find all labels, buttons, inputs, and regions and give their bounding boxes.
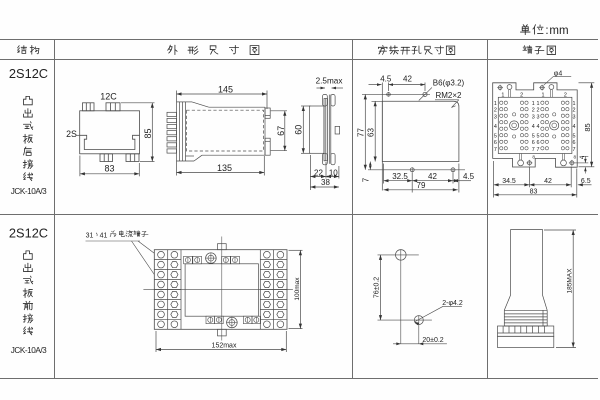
svg-text:1: 1 <box>542 92 545 98</box>
svg-text:JCK-10A/3: JCK-10A/3 <box>11 346 47 355</box>
svg-text:41: 41 <box>100 232 108 239</box>
svg-text:83: 83 <box>530 188 538 195</box>
svg-text:4.5: 4.5 <box>380 75 392 84</box>
svg-text:83: 83 <box>104 163 114 173</box>
svg-text:7: 7 <box>532 147 535 153</box>
svg-text:1: 1 <box>532 101 535 107</box>
svg-text:JCK-10A/3: JCK-10A/3 <box>11 187 47 196</box>
svg-text:10: 10 <box>329 168 338 177</box>
svg-text:4: 4 <box>573 124 576 130</box>
svg-text:100max: 100max <box>294 277 301 301</box>
svg-text:6: 6 <box>494 140 497 146</box>
svg-text:2: 2 <box>532 107 535 113</box>
svg-text:22: 22 <box>314 168 323 177</box>
svg-text:2: 2 <box>537 107 540 113</box>
svg-text:5: 5 <box>573 134 576 140</box>
svg-text:6.5: 6.5 <box>581 178 591 185</box>
svg-text:4: 4 <box>580 155 586 159</box>
svg-text:2: 2 <box>564 92 567 98</box>
svg-text:3: 3 <box>532 115 535 121</box>
svg-text:31: 31 <box>86 232 94 239</box>
svg-text:2.5max: 2.5max <box>316 76 343 85</box>
svg-text:79: 79 <box>417 181 426 190</box>
svg-text:135: 135 <box>217 163 232 173</box>
svg-text::: : <box>545 25 548 37</box>
svg-text:5: 5 <box>532 134 535 140</box>
svg-text:3: 3 <box>573 115 576 121</box>
svg-text:6: 6 <box>573 140 576 146</box>
svg-text:8: 8 <box>532 154 535 159</box>
svg-text:5: 5 <box>494 134 497 140</box>
svg-text:2: 2 <box>520 92 523 98</box>
svg-text:4.5: 4.5 <box>463 172 475 181</box>
svg-text:34.5: 34.5 <box>502 178 516 185</box>
svg-text:20±0.2: 20±0.2 <box>422 337 443 344</box>
svg-text:1: 1 <box>501 92 504 98</box>
svg-text:8: 8 <box>574 154 577 159</box>
svg-text:2S12C: 2S12C <box>9 225 48 240</box>
svg-text:2-φ4.2: 2-φ4.2 <box>442 300 463 307</box>
svg-text:B6(φ3.2): B6(φ3.2) <box>433 79 465 88</box>
svg-text:3: 3 <box>537 115 540 121</box>
svg-text:1: 1 <box>537 101 540 107</box>
svg-text:85: 85 <box>583 123 592 131</box>
svg-text:1: 1 <box>573 101 576 107</box>
svg-text:77: 77 <box>357 128 366 137</box>
svg-text:12C: 12C <box>100 92 117 102</box>
svg-text:152max: 152max <box>212 342 237 349</box>
svg-text:85: 85 <box>143 128 153 138</box>
svg-text:145: 145 <box>218 84 233 94</box>
svg-text:3: 3 <box>494 115 497 121</box>
svg-text:7: 7 <box>361 177 370 182</box>
svg-text:76±0.2: 76±0.2 <box>374 277 381 298</box>
svg-text:4: 4 <box>532 124 535 130</box>
svg-text:42: 42 <box>544 178 552 185</box>
svg-text:67: 67 <box>276 126 286 136</box>
svg-text:4: 4 <box>494 124 497 130</box>
svg-text:32.5: 32.5 <box>392 172 408 181</box>
svg-text:4: 4 <box>537 124 540 130</box>
svg-text:185MAX: 185MAX <box>567 268 574 294</box>
svg-text:38: 38 <box>321 178 330 187</box>
svg-text:7: 7 <box>573 147 576 153</box>
svg-text:60: 60 <box>294 125 304 135</box>
svg-text:2S: 2S <box>66 129 77 139</box>
svg-text:2: 2 <box>573 107 576 113</box>
svg-text:2S12C: 2S12C <box>9 66 48 81</box>
svg-text:63: 63 <box>367 128 376 137</box>
svg-text:1: 1 <box>494 101 497 107</box>
svg-text:42: 42 <box>428 172 437 181</box>
svg-text:6: 6 <box>537 140 540 146</box>
svg-text:6: 6 <box>532 140 535 146</box>
svg-text:7: 7 <box>494 147 497 153</box>
svg-text:5: 5 <box>537 134 540 140</box>
svg-text:mm: mm <box>549 25 568 37</box>
svg-text:2: 2 <box>494 107 497 113</box>
svg-text:7: 7 <box>537 147 540 153</box>
svg-text:RM2×2: RM2×2 <box>435 91 462 100</box>
svg-text:42: 42 <box>403 75 412 84</box>
